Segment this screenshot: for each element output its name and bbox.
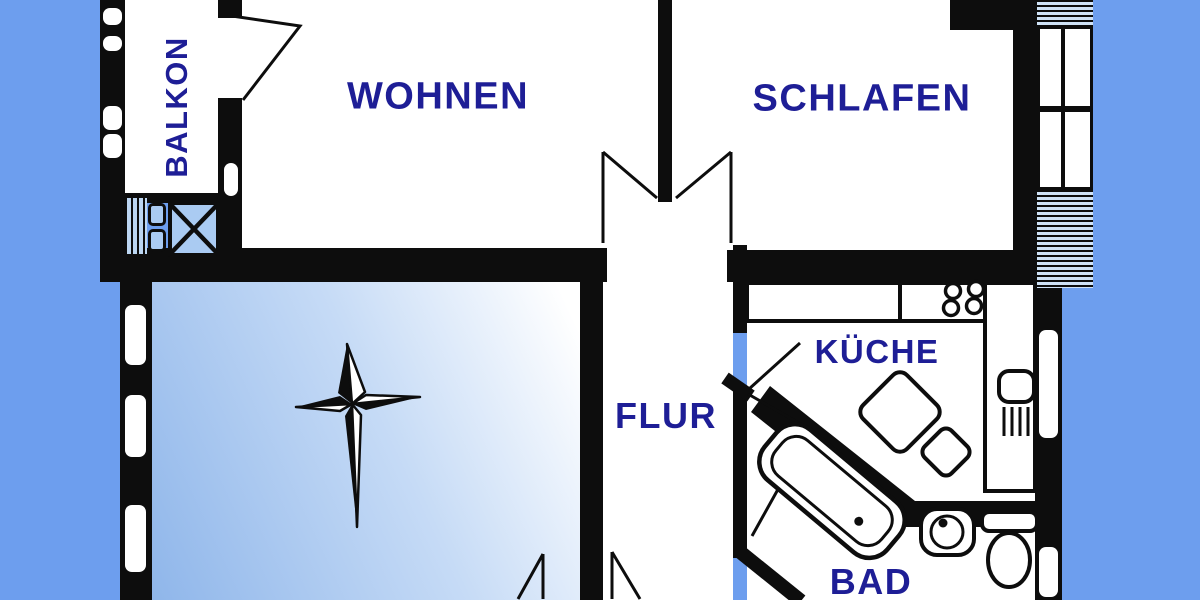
door-schlafen bbox=[676, 152, 731, 243]
label-flur: FLUR bbox=[615, 395, 717, 437]
door-balkon bbox=[232, 16, 300, 100]
label-wohnen: WOHNEN bbox=[347, 76, 529, 119]
label-schlafen: SCHLAFEN bbox=[753, 78, 972, 121]
label-balkon: BALKON bbox=[159, 36, 195, 178]
door-lower-room bbox=[518, 554, 543, 599]
north-arrow-compass-icon bbox=[296, 344, 420, 527]
door-flur-south bbox=[612, 552, 640, 599]
shaft-cross-icon bbox=[170, 204, 218, 254]
washbasin-icon bbox=[921, 509, 974, 555]
toilet-icon bbox=[982, 512, 1037, 587]
door-kueche bbox=[749, 343, 800, 389]
label-kueche: KÜCHE bbox=[815, 333, 940, 371]
door-wohnen bbox=[603, 152, 657, 243]
label-bad: BAD bbox=[830, 561, 913, 600]
floor-plan: BALKON WOHNEN SCHLAFEN FLUR KÜCHE BAD bbox=[0, 0, 1200, 600]
kitchen-sink-icon bbox=[856, 368, 973, 479]
